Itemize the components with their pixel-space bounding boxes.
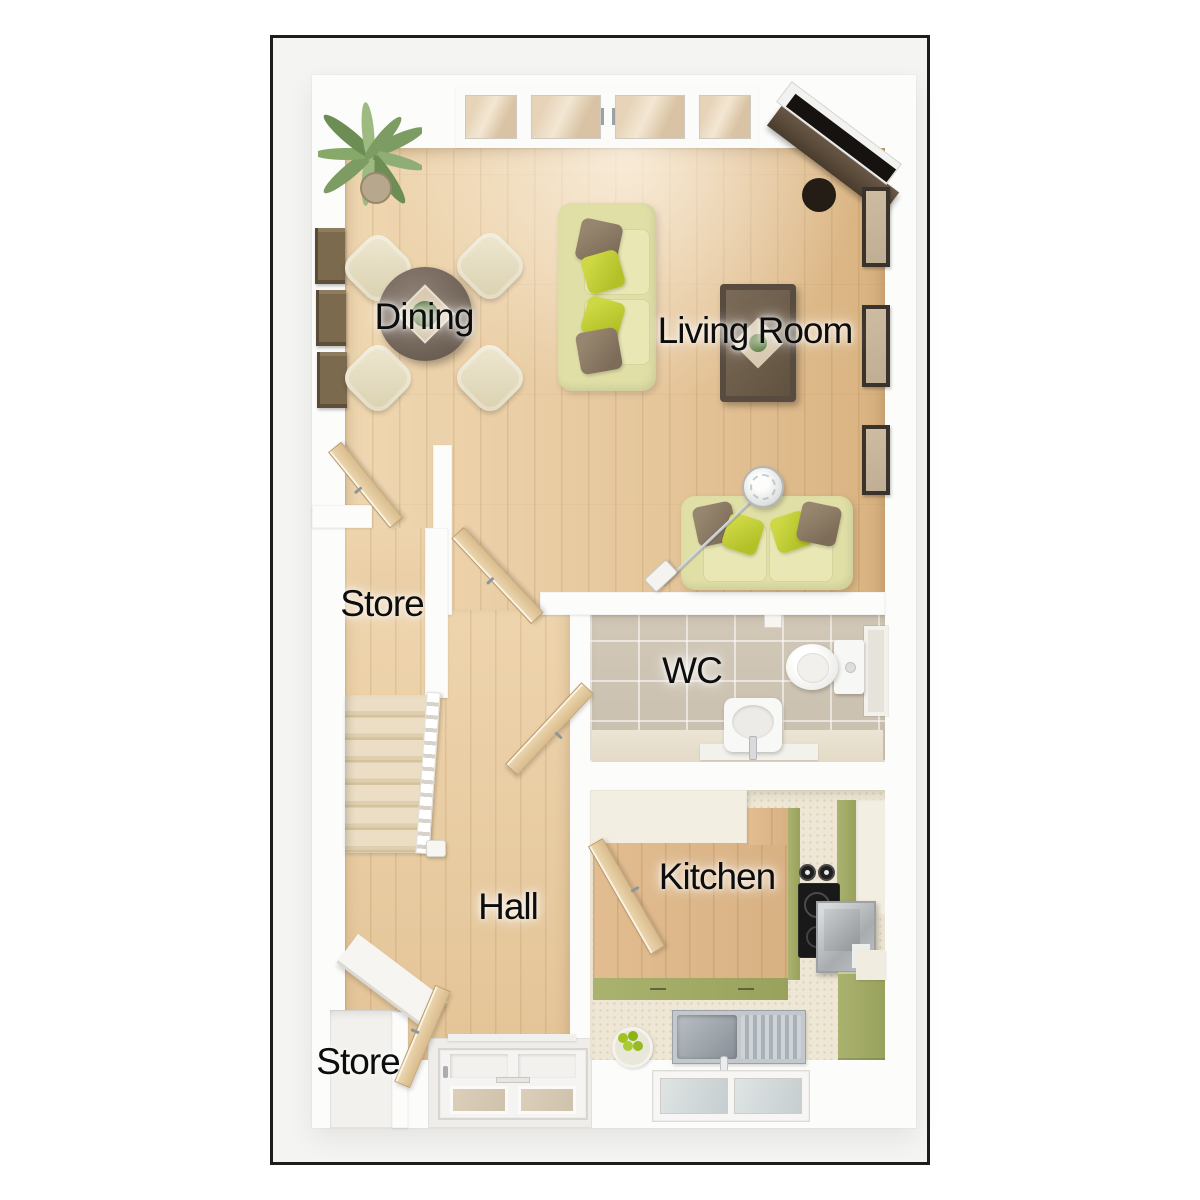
front-door-panel: [518, 1054, 576, 1078]
front-door-glass: [518, 1086, 576, 1114]
toilet-flush-button: [845, 662, 856, 673]
room-label-store-upper: Store: [340, 583, 423, 625]
wall-shelf-unit: [315, 228, 345, 284]
room-label-kitchen: Kitchen: [659, 856, 775, 898]
saucepan-lid-knob: [805, 870, 810, 875]
saucepan-lid-knob: [824, 870, 829, 875]
plant-foliage: [318, 98, 422, 210]
floor-plan-image: Dining Living Room Store WC Hall Kitchen…: [0, 0, 1200, 1200]
kitchen-floor-notch: [747, 808, 788, 845]
cabinet-handle: [738, 988, 754, 990]
front-door-handle: [443, 1066, 448, 1078]
glass-door-leaf: [610, 90, 690, 144]
room-label-store-lower: Store: [316, 1041, 399, 1083]
wall-living-hall-divider: [540, 592, 885, 615]
wall-shelf-unit: [317, 352, 347, 408]
potted-plant: [318, 98, 422, 210]
room-label-dining: Dining: [375, 296, 474, 338]
store-upper-top-wall: [312, 505, 372, 528]
picture-frame: [862, 305, 890, 387]
kitchen-tall-cabinet-side: [856, 800, 885, 915]
room-label-hall: Hall: [478, 886, 538, 928]
wall-shelf-unit: [316, 290, 346, 346]
sink-basin: [677, 1015, 737, 1059]
kitchen-upper-cabinets: [590, 790, 747, 845]
front-door-letterbox: [496, 1077, 530, 1083]
room-label-living-room: Living Room: [658, 310, 853, 352]
picture-frame: [862, 425, 890, 495]
cushion-brown: [575, 327, 624, 376]
tv-speaker: [802, 178, 836, 212]
kitchen-window-pane: [734, 1078, 802, 1114]
kitchen-base-unit-front: [593, 978, 788, 1000]
wc-window: [864, 626, 888, 716]
french-door-handle: [601, 108, 604, 125]
wc-basin-bowl: [732, 705, 774, 739]
door-threshold-step: [448, 1034, 576, 1041]
picture-frame: [862, 187, 890, 267]
apple: [628, 1031, 638, 1041]
stairs-newel-post: [426, 840, 446, 857]
cushion-brown: [795, 500, 842, 547]
french-door-handle: [612, 108, 615, 125]
front-door-panel: [450, 1054, 508, 1078]
cabinet-handle: [650, 988, 666, 990]
glass-side-panel: [460, 90, 522, 144]
apple: [633, 1041, 643, 1051]
glass-door-leaf: [526, 90, 606, 144]
kitchen-window-pane: [660, 1078, 728, 1114]
toilet-seat: [797, 653, 829, 683]
wc-basin-tap: [749, 736, 757, 760]
front-door-glass: [450, 1086, 508, 1114]
sink-drainer: [741, 1015, 801, 1059]
kitchen-drawer-stack: [838, 972, 885, 1060]
kitchen-drawer-cream-top: [856, 950, 885, 980]
apple: [623, 1041, 633, 1051]
lamp-shade-pattern: [750, 474, 776, 500]
glass-side-panel: [694, 90, 756, 144]
store-upper-right-wall: [425, 528, 448, 698]
room-label-wc: WC: [662, 650, 722, 692]
